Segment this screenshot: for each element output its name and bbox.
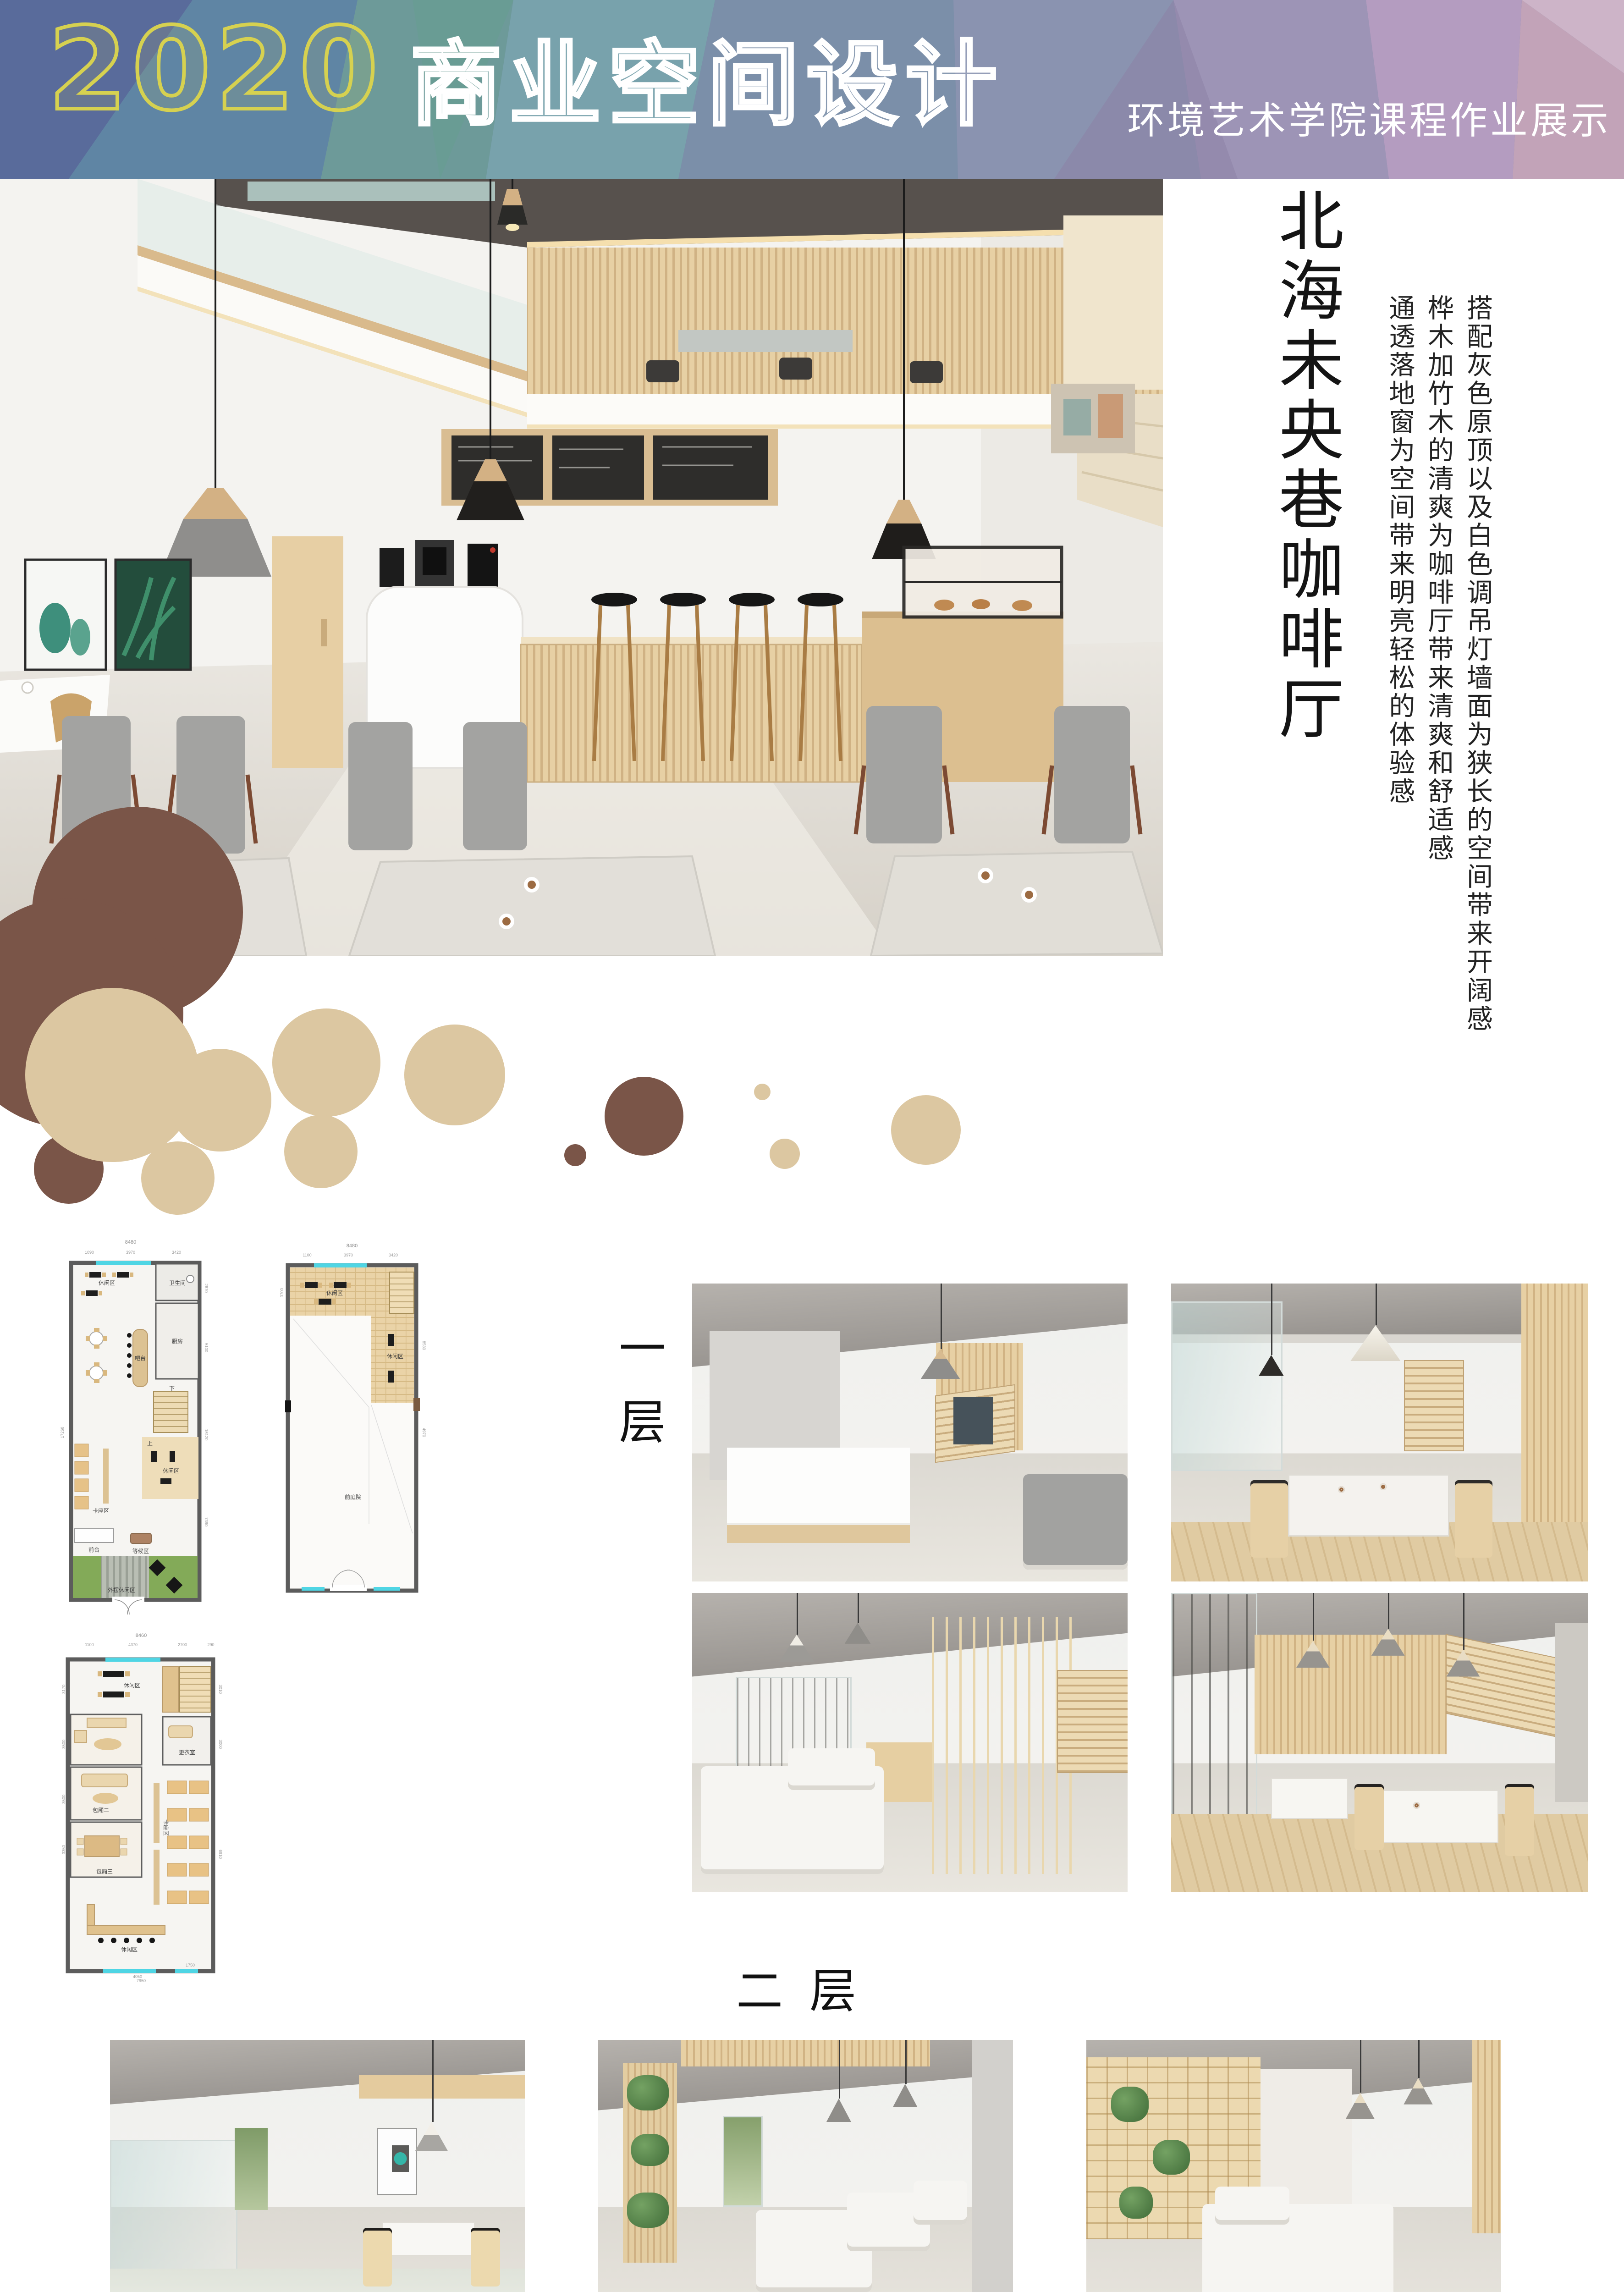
section-label-floor2: 二层 bbox=[736, 1954, 883, 2021]
svg-text:3420: 3420 bbox=[172, 1250, 181, 1255]
svg-text:1100: 1100 bbox=[85, 1642, 94, 1647]
svg-text:休闲区: 休闲区 bbox=[99, 1280, 115, 1286]
section-label-floor1: 一层 bbox=[604, 1324, 672, 1471]
svg-text:290: 290 bbox=[207, 1642, 214, 1647]
svg-text:3170: 3170 bbox=[61, 1685, 66, 1694]
decor-circle bbox=[25, 988, 199, 1162]
svg-text:8480: 8480 bbox=[125, 1240, 136, 1245]
svg-text:包厢二: 包厢二 bbox=[93, 1807, 109, 1813]
svg-text:8460: 8460 bbox=[136, 1633, 147, 1638]
svg-text:8530: 8530 bbox=[422, 1341, 426, 1350]
svg-text:17260: 17260 bbox=[60, 1427, 65, 1438]
poster-title: 商业空间设计 bbox=[410, 10, 1004, 143]
svg-text:3350: 3350 bbox=[61, 1845, 66, 1854]
render-2f-lounge-plants bbox=[598, 2040, 1013, 2292]
project-title: 北海未央巷咖啡厅 bbox=[1272, 187, 1338, 744]
svg-text:4370: 4370 bbox=[128, 1642, 138, 1647]
svg-text:16120: 16120 bbox=[204, 1429, 209, 1440]
svg-text:外摆休闲区: 外摆休闲区 bbox=[108, 1587, 135, 1593]
svg-text:下: 下 bbox=[169, 1385, 175, 1392]
description-column-2: 桦木加竹木的清爽为咖啡厅带来清爽和舒适感 bbox=[1424, 294, 1453, 1064]
svg-text:吧台: 吧台 bbox=[135, 1355, 146, 1361]
render-1f-lounge bbox=[692, 1593, 1128, 1892]
svg-text:休闲区: 休闲区 bbox=[326, 1290, 343, 1296]
floor-plan-first-floor: 8480 1090 3970 3420 17260 2670 5100 1612… bbox=[57, 1235, 209, 1618]
svg-text:5100: 5100 bbox=[204, 1343, 209, 1352]
svg-text:厨房: 厨房 bbox=[172, 1338, 183, 1344]
svg-text:1100: 1100 bbox=[303, 1253, 311, 1257]
svg-text:2670: 2670 bbox=[204, 1284, 209, 1293]
svg-text:卡座区: 卡座区 bbox=[163, 1819, 170, 1836]
floor-plan-second-floor-detail: 8460 1100 4370 2700 290 3170 3500 3500 3… bbox=[60, 1630, 225, 1983]
floor-plan-second-floor-overview: 8480 1100 3970 3420 3700 8530 4970 休闲区 休… bbox=[280, 1240, 426, 1602]
svg-text:6910: 6910 bbox=[218, 1850, 223, 1859]
render-2f-lounge-shelf bbox=[1086, 2040, 1501, 2292]
svg-text:4970: 4970 bbox=[422, 1428, 426, 1437]
svg-text:卫生间: 卫生间 bbox=[169, 1280, 186, 1286]
svg-text:前台: 前台 bbox=[88, 1546, 99, 1553]
svg-text:上: 上 bbox=[147, 1440, 153, 1447]
svg-text:3500: 3500 bbox=[61, 1740, 66, 1749]
svg-text:3700: 3700 bbox=[280, 1288, 284, 1297]
svg-text:3970: 3970 bbox=[126, 1250, 135, 1255]
svg-text:8480: 8480 bbox=[347, 1243, 358, 1249]
svg-text:休闲区: 休闲区 bbox=[163, 1468, 179, 1474]
decor-circle bbox=[770, 1139, 800, 1169]
svg-text:休闲区: 休闲区 bbox=[124, 1682, 140, 1689]
svg-text:7390: 7390 bbox=[204, 1517, 209, 1526]
svg-text:休闲区: 休闲区 bbox=[121, 1946, 138, 1953]
decor-circle bbox=[272, 1008, 380, 1117]
svg-text:前庭院: 前庭院 bbox=[345, 1493, 361, 1500]
svg-text:更衣室: 更衣室 bbox=[179, 1749, 195, 1756]
svg-text:2700: 2700 bbox=[178, 1642, 187, 1647]
svg-text:3010: 3010 bbox=[218, 1685, 223, 1694]
render-1f-dining bbox=[1171, 1284, 1588, 1581]
render-2f-corridor bbox=[110, 2040, 525, 2292]
svg-text:3500: 3500 bbox=[61, 1795, 66, 1804]
description-column-3: 通透落地窗为空间带来明亮轻松的体验感 bbox=[1385, 294, 1414, 1064]
decor-circle bbox=[754, 1084, 771, 1100]
svg-text:卡座区: 卡座区 bbox=[93, 1507, 109, 1514]
year-text: 2020 bbox=[48, 4, 383, 136]
decor-circle bbox=[169, 1049, 271, 1152]
svg-text:休闲区: 休闲区 bbox=[387, 1353, 403, 1360]
decor-circle bbox=[141, 1141, 215, 1215]
render-1f-dining-window bbox=[1171, 1593, 1588, 1892]
svg-text:3000: 3000 bbox=[218, 1740, 223, 1749]
svg-text:等候区: 等候区 bbox=[132, 1548, 149, 1554]
project-description: 搭配灰色原顶以及白色调吊灯墙面为狭长的空间带来开阔感 桦木加竹木的清爽为咖啡厅带… bbox=[1375, 294, 1501, 1064]
decor-circle bbox=[605, 1077, 683, 1156]
poster-subtitle: 环境艺术学院课程作业展示 bbox=[1127, 90, 1611, 144]
svg-text:3420: 3420 bbox=[389, 1253, 398, 1257]
description-column-1: 搭配灰色原顶以及白色调吊灯墙面为狭长的空间带来开阔感 bbox=[1463, 294, 1492, 1064]
decor-circle bbox=[564, 1144, 586, 1166]
svg-text:1090: 1090 bbox=[85, 1250, 94, 1255]
svg-text:包厢三: 包厢三 bbox=[96, 1868, 113, 1875]
svg-text:1750: 1750 bbox=[186, 1963, 195, 1967]
decor-circle bbox=[891, 1095, 961, 1165]
decor-circle bbox=[404, 1025, 505, 1125]
svg-text:3970: 3970 bbox=[344, 1253, 353, 1257]
svg-text:7950: 7950 bbox=[137, 1978, 146, 1983]
header-band: 2020 商业空间设计 环境艺术学院课程作业展示 bbox=[0, 0, 1624, 179]
decor-circle bbox=[284, 1115, 358, 1188]
render-1f-reception bbox=[692, 1284, 1128, 1581]
